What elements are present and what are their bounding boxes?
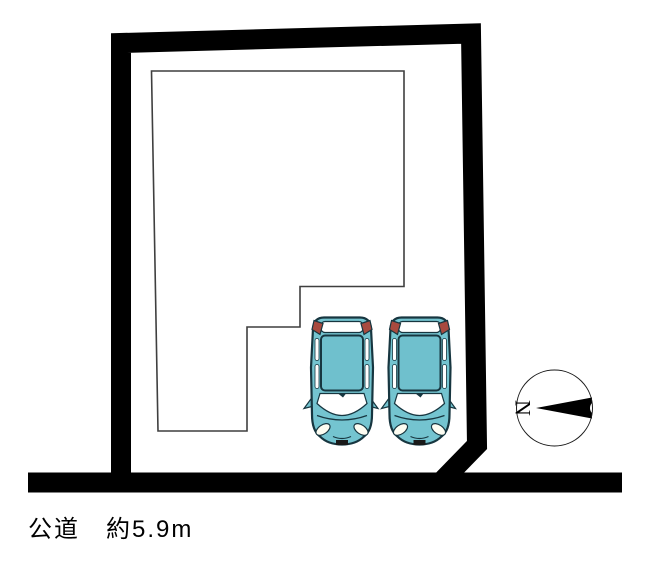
car-1: [304, 318, 378, 446]
compass-north-label: N: [511, 400, 536, 416]
car-2: [382, 318, 456, 446]
road-label: 公道 約5.9m: [28, 516, 193, 543]
site-plan-svg: N 公道 約5.9m: [0, 0, 653, 564]
compass: N: [511, 370, 606, 446]
site-plan-canvas: N 公道 約5.9m: [0, 0, 653, 564]
north-arrow-icon: [536, 398, 592, 419]
